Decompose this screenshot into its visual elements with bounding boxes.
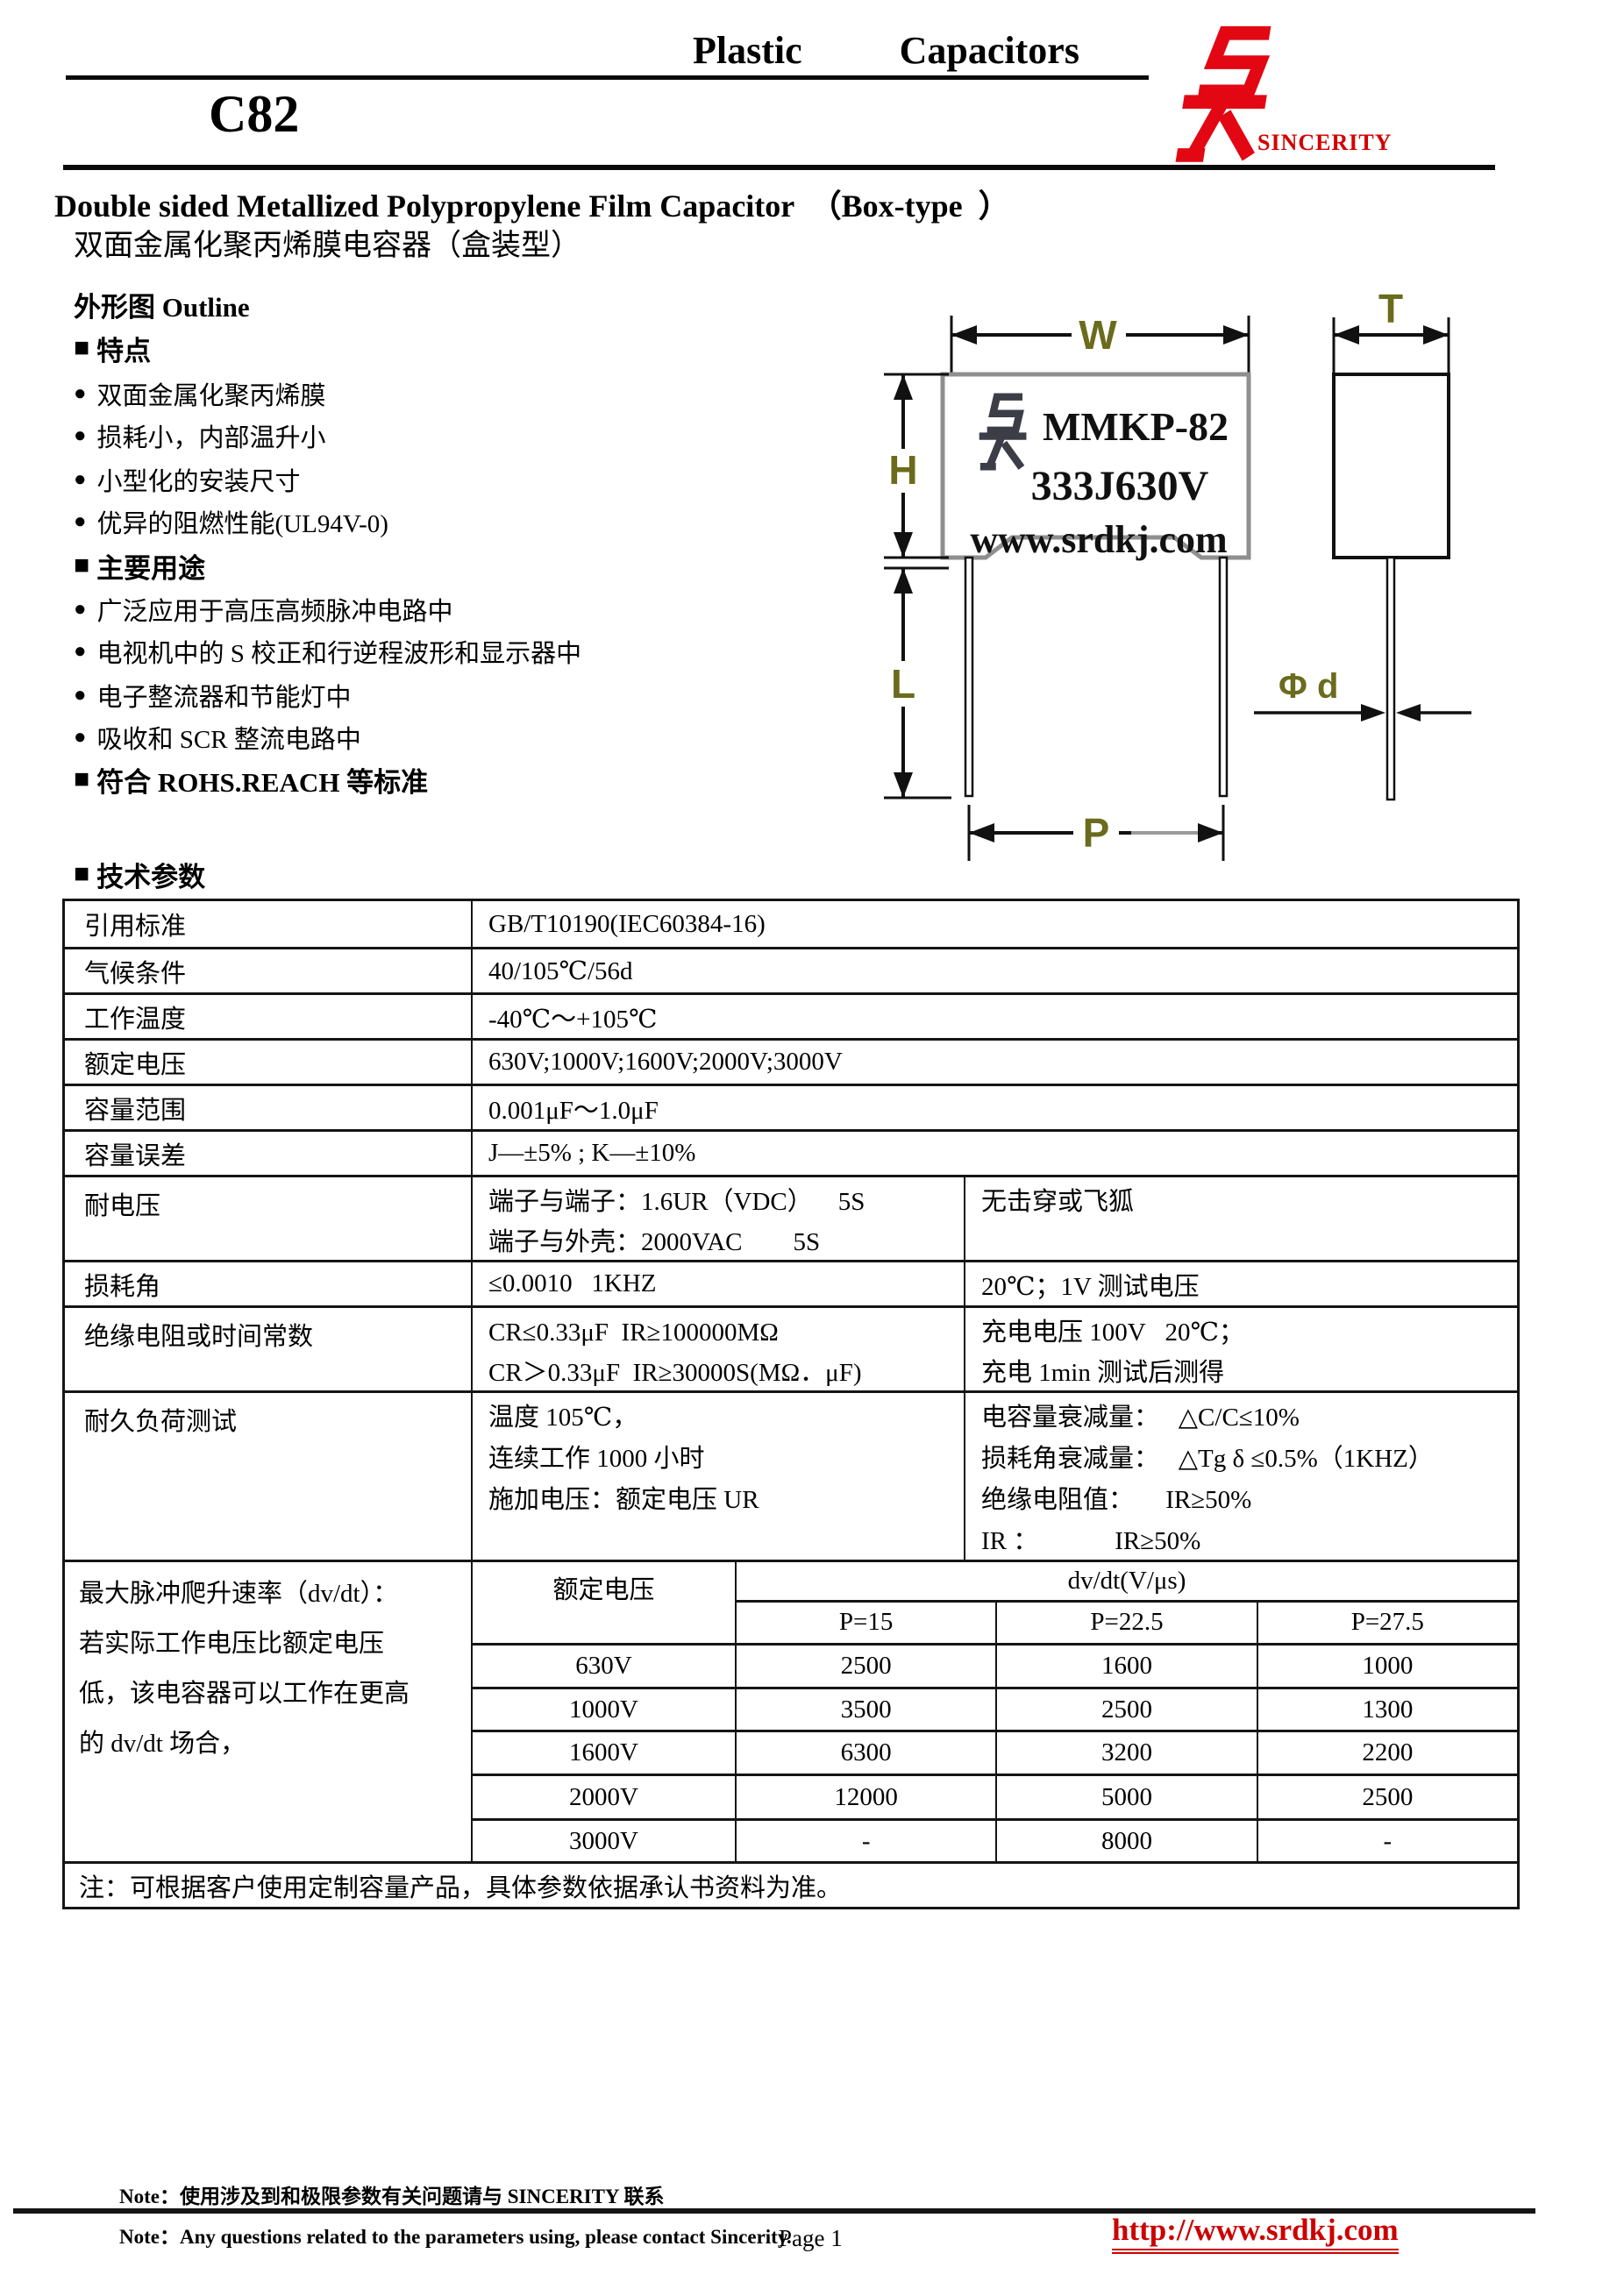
use-text: 电子整流器和节能灯中: [97, 677, 352, 714]
dvdt-pitch-header: P=22.5: [995, 1603, 1256, 1644]
dvdt-value: 8000: [995, 1821, 1256, 1861]
dim-l-label: L: [891, 661, 915, 707]
product-title-en: Double sided Metallized Polypropylene Fi…: [54, 181, 1010, 226]
uses-heading-label: 主要用途: [96, 546, 205, 586]
bullet-icon: ●: [74, 469, 87, 490]
features-heading-label: 特点: [96, 329, 151, 368]
dvdt-value-row: 6300 3200 2200: [737, 1730, 1517, 1774]
spec-value: 630V;1000V;1600V;2000V;3000V: [471, 1041, 1517, 1084]
table-note: 注：可根据客户使用定制容量产品，具体参数依据承认书资料为准。: [65, 1861, 1517, 1907]
dvdt-unit-header: dv/dt(V/μs): [737, 1562, 1517, 1600]
dvdt-value: 5000: [995, 1776, 1256, 1819]
square-icon: ■: [74, 552, 89, 579]
rohs-heading-label: 符合 ROHS.REACH 等标准: [96, 760, 428, 800]
features-heading: ■ 特点: [74, 330, 151, 366]
table-row: 气候条件 40/105℃/56d: [65, 947, 1517, 992]
spec-label: 耐电压: [65, 1177, 471, 1260]
table-row: 耐电压 端子与端子：1.6UR（VDC） 5S 端子与外壳：2000VAC 5S…: [65, 1175, 1517, 1260]
feature-item: ● 双面金属化聚丙烯膜: [74, 375, 326, 412]
table-row: 引用标准 GB/T10190(IEC60384-16): [65, 901, 1517, 947]
spec-label: 绝缘电阻或时间常数: [65, 1308, 471, 1390]
use-item: ● 电子整流器和节能灯中: [74, 677, 352, 714]
use-item: ● 电视机中的 S 校正和行逆程波形和显示器中: [74, 633, 581, 670]
bullet-icon: ●: [74, 599, 87, 620]
dvdt-pitch-header-row: P=15 P=22.5 P=27.5: [737, 1600, 1517, 1644]
table-row: 耐久负荷测试 温度 105℃， 连续工作 1000 小时 施加电压：额定电压 U…: [65, 1390, 1517, 1560]
spec-value: 0.001μF～1.0μF: [471, 1086, 1517, 1129]
dvdt-value-row: 12000 5000 2500: [737, 1774, 1517, 1819]
square-icon: ■: [74, 766, 89, 793]
specs-heading: ■ 技术参数: [74, 856, 205, 892]
specs-heading-label: 技术参数: [96, 855, 205, 894]
brand-name: SINCERITY: [1257, 130, 1393, 156]
dvdt-rated-cell: 630V: [473, 1643, 735, 1687]
spec-label: 额定电压: [65, 1041, 471, 1084]
footer-note-cn: Note：使用涉及到和极限参数有关问题请与 SINCERITY 联系: [119, 2179, 664, 2209]
table-row: 工作温度 -40℃～+105℃: [65, 992, 1517, 1038]
use-item: ● 广泛应用于高压高频脉冲电路中: [74, 591, 453, 628]
website-link[interactable]: http://www.srdkj.com: [1112, 2213, 1399, 2254]
rohs-heading: ■ 符合 ROHS.REACH 等标准: [74, 761, 428, 798]
dvdt-value: 2500: [737, 1646, 995, 1687]
spec-value: -40℃～+105℃: [471, 995, 1517, 1038]
dvdt-value-row: 3500 2500 1300: [737, 1687, 1517, 1731]
table-row: 额定电压 630V;1000V;1600V;2000V;3000V: [65, 1038, 1517, 1084]
feature-item: ● 损耗小，内部温升小: [74, 417, 326, 454]
table-row: 损耗角 ≤0.0010 1KHZ 20℃；1V 测试电压: [65, 1260, 1517, 1305]
use-text: 电视机中的 S 校正和行逆程波形和显示器中: [97, 633, 582, 670]
feature-text: 小型化的安装尺寸: [97, 461, 301, 498]
dvdt-rated-cell: 3000V: [473, 1818, 735, 1861]
feature-text: 双面金属化聚丙烯膜: [97, 375, 326, 412]
feature-item: ● 小型化的安装尺寸: [74, 461, 301, 498]
outline-heading: 外形图 Outline: [74, 286, 250, 323]
dvdt-rated-cell: 1600V: [473, 1730, 735, 1774]
dvdt-rated-header: 额定电压: [473, 1562, 735, 1643]
bullet-icon: ●: [74, 383, 87, 404]
dim-p-label: P: [1083, 810, 1110, 856]
spec-table: 引用标准 GB/T10190(IEC60384-16) 气候条件 40/105℃…: [62, 899, 1520, 1909]
header-rule: [63, 165, 1495, 170]
dvdt-value-row: 2500 1600 1000: [737, 1643, 1517, 1687]
dvdt-value: 6300: [737, 1732, 995, 1774]
dvdt-block: 最大脉冲爬升速率（dv/dt）： 若实际工作电压比额定电压 低，该电容器可以工作…: [65, 1560, 1517, 1861]
feature-text: 优异的阻燃性能(UL94V-0): [97, 503, 388, 540]
feature-item: ● 优异的阻燃性能(UL94V-0): [74, 503, 388, 540]
dvdt-value: 12000: [737, 1776, 995, 1819]
dvdt-value: 1600: [995, 1646, 1256, 1687]
dvdt-pitch-header: P=15: [737, 1603, 995, 1644]
use-text: 吸收和 SCR 整流电路中: [97, 719, 361, 756]
table-row: 绝缘电阻或时间常数 CR≤0.33μF IR≥100000MΩ CR＞0.33μ…: [65, 1305, 1517, 1390]
feature-text: 损耗小，内部温升小: [97, 417, 326, 454]
marking-series: MMKP-82: [1043, 404, 1229, 449]
square-icon: ■: [74, 861, 89, 887]
bullet-icon: ●: [74, 511, 87, 532]
spec-condition: 温度 105℃， 连续工作 1000 小时 施加电压：额定电压 UR: [471, 1393, 964, 1560]
title-underline: [66, 75, 1149, 80]
dvdt-value: -: [737, 1821, 995, 1861]
spec-label: 损耗角: [65, 1262, 471, 1305]
dvdt-table: 额定电压 630V 1000V 1600V 2000V 3000V dv/dt(…: [471, 1562, 1517, 1861]
dim-h-label: H: [888, 447, 917, 493]
spec-label: 气候条件: [65, 949, 471, 992]
product-title-cn: 双面金属化聚丙烯膜电容器（盒装型）: [74, 221, 581, 264]
outline-heading-label: 外形图 Outline: [74, 285, 250, 324]
dvdt-value: 1000: [1257, 1646, 1517, 1687]
dim-w-label: W: [1079, 312, 1117, 358]
marking-url: www.srdkj.com: [970, 518, 1227, 561]
dvdt-description: 最大脉冲爬升速率（dv/dt）： 若实际工作电压比额定电压 低，该电容器可以工作…: [65, 1562, 471, 1861]
spec-label: 容量误差: [65, 1132, 471, 1175]
spec-value: 40/105℃/56d: [471, 949, 1517, 992]
spec-condition: ≤0.0010 1KHZ: [471, 1262, 964, 1305]
bullet-icon: ●: [74, 727, 87, 748]
dvdt-rated-cell: 1000V: [473, 1687, 735, 1731]
table-row: 容量误差 J—±5% ; K—±10%: [65, 1129, 1517, 1175]
spec-value: J—±5% ; K—±10%: [471, 1132, 1517, 1175]
spec-value: GB/T10190(IEC60384-16): [471, 901, 1517, 947]
outline-diagram: W MMKP-82 333J630V www.srdkj.com H: [868, 289, 1561, 868]
model-number: C82: [209, 84, 299, 145]
use-item: ● 吸收和 SCR 整流电路中: [74, 719, 361, 756]
bullet-icon: ●: [74, 685, 87, 706]
dim-d-label: Φ d: [1279, 667, 1338, 706]
spec-condition: 端子与端子：1.6UR（VDC） 5S 端子与外壳：2000VAC 5S: [471, 1177, 964, 1260]
spec-label: 耐久负荷测试: [65, 1393, 471, 1560]
spec-condition: CR≤0.33μF IR≥100000MΩ CR＞0.33μF IR≥30000…: [471, 1308, 964, 1390]
footer-note-en: Note：Any questions related to the parame…: [119, 2220, 792, 2250]
table-row: 容量范围 0.001μF～1.0μF: [65, 1084, 1517, 1129]
dvdt-value: 1300: [1257, 1689, 1517, 1731]
bullet-icon: ●: [74, 425, 87, 446]
dvdt-value: 2200: [1257, 1732, 1517, 1774]
uses-heading: ■ 主要用途: [74, 547, 205, 584]
spec-label: 引用标准: [65, 901, 471, 947]
spec-label: 工作温度: [65, 995, 471, 1038]
dvdt-value: -: [1257, 1821, 1517, 1861]
dvdt-value: 3200: [995, 1732, 1256, 1774]
dim-t-label: T: [1378, 289, 1403, 331]
dvdt-value: 2500: [995, 1689, 1256, 1731]
square-icon: ■: [74, 335, 89, 361]
bullet-icon: ●: [74, 641, 87, 662]
datasheet-page: Plastic Capacitors SINCERITY C82 Double …: [0, 0, 1624, 2296]
spec-label: 容量范围: [65, 1086, 471, 1129]
use-text: 广泛应用于高压高频脉冲电路中: [97, 591, 453, 628]
dvdt-rated-cell: 2000V: [473, 1774, 735, 1819]
dvdt-value-row: - 8000 -: [737, 1818, 1517, 1861]
spec-requirement: 充电电压 100V 20℃； 充电 1min 测试后测得: [964, 1308, 1517, 1390]
spec-requirement: 20℃；1V 测试电压: [964, 1262, 1517, 1305]
marking-code: 333J630V: [1031, 463, 1209, 509]
doc-title: Plastic Capacitors: [693, 28, 1079, 73]
page-number: Page 1: [779, 2225, 843, 2252]
dvdt-pitch-header: P=27.5: [1257, 1603, 1517, 1644]
spec-requirement: 无击穿或飞狐: [964, 1177, 1517, 1260]
spec-requirement: 电容量衰减量： △C/C≤10% 损耗角衰减量： △Tg δ ≤0.5%（1KH…: [964, 1393, 1517, 1560]
dvdt-value: 2500: [1257, 1776, 1517, 1819]
dvdt-value: 3500: [737, 1689, 995, 1731]
